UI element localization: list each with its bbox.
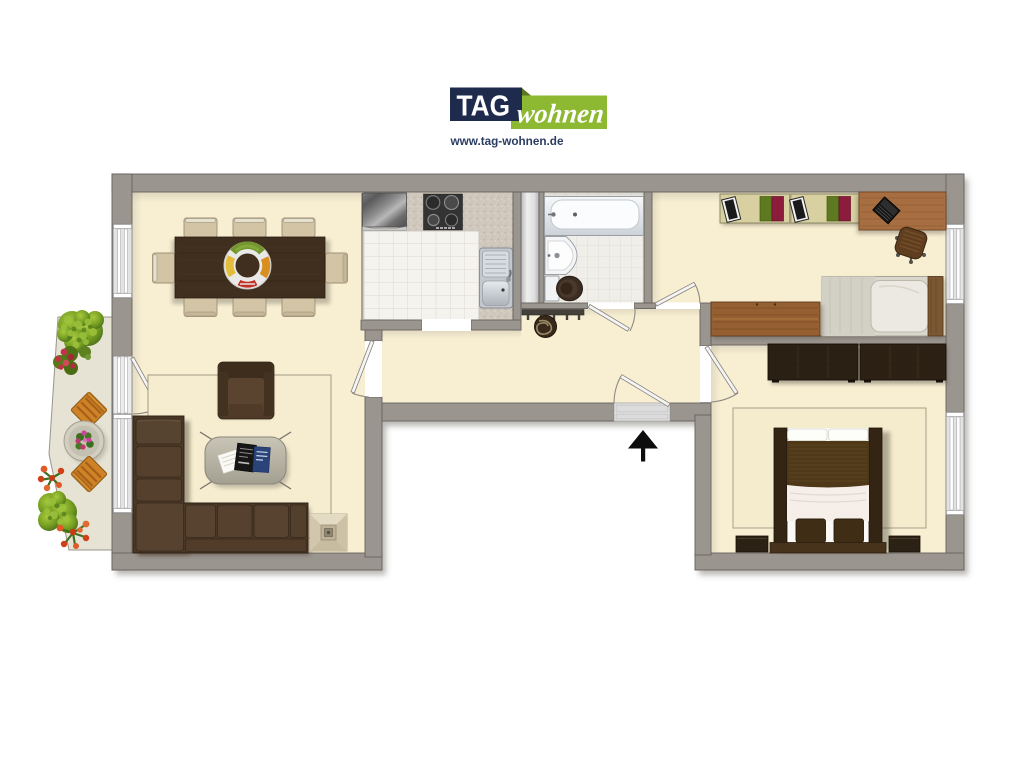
svg-text:wohnen: wohnen bbox=[515, 99, 605, 129]
svg-text:TAG: TAG bbox=[457, 91, 511, 123]
svg-text:www.tag-wohnen.de: www.tag-wohnen.de bbox=[449, 136, 563, 148]
